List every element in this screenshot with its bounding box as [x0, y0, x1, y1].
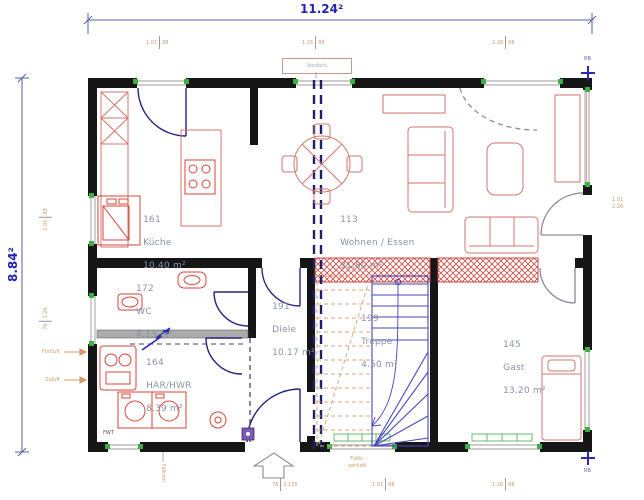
entrance-arrow [254, 453, 293, 478]
room-label-wc: 172 WC 4.13 m² [130, 272, 173, 342]
room-label-treppe: 199 Treppe 4.50 m² [355, 302, 398, 372]
vent-label-fortluft: Fortluft [20, 349, 60, 355]
canopy-stamp: Vordach [282, 58, 352, 74]
downpipe-label: Fallrohr [160, 464, 166, 483]
window-mark: 1.0188 [372, 478, 395, 491]
width-dimension: 11.24² [300, 2, 343, 16]
room-label-diele: 191 Diele 10.17 m² [266, 290, 315, 360]
fwt-label: FWT [103, 430, 114, 437]
window-mark-right: 1.012.26 [612, 197, 623, 210]
room-label-gast: 145 Gast 13.20 m² [497, 328, 546, 398]
guest-furniture [542, 356, 581, 440]
room-label-hwr: 164 HAR/HWR 8.39 m² [140, 346, 192, 416]
height-dimension: 8.84² [6, 247, 20, 282]
window-mark: 1.0188 [146, 36, 169, 49]
window-mark: 761.26 [39, 307, 52, 330]
room-label-kueche: 161 Küche 10.40 m² [137, 203, 186, 273]
reference-label-bottom: RB [584, 468, 591, 475]
window-mark: 762.135 [272, 478, 298, 491]
window-mark: 1.0188 [39, 208, 52, 231]
vent-arrows [64, 349, 86, 383]
dining-furniture [282, 95, 445, 204]
floorplan-drawing [0, 0, 644, 500]
reference-label-top: RB [584, 56, 591, 63]
window-mark: 2.2688 [492, 36, 515, 49]
entry-note: Fußb.vertieft [348, 456, 366, 469]
window-mark: 1.2688 [302, 36, 325, 49]
vent-label-zuluft: Zuluft [20, 377, 60, 383]
room-label-wohnen: 113 Wohnen / Essen 31.80 m² [334, 203, 415, 273]
floor-plan-page: { "dims": { "width": "11.24²", "height":… [0, 0, 644, 500]
window-mark: 1.2688 [492, 478, 515, 491]
living-furniture [408, 95, 580, 253]
